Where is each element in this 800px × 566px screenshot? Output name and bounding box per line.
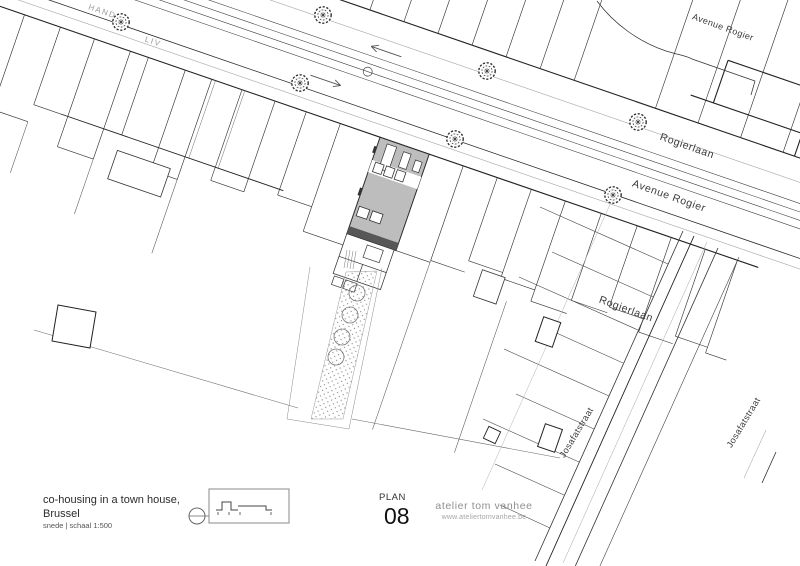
street-tree-icon bbox=[447, 131, 463, 147]
traffic-arrow-east bbox=[309, 72, 342, 89]
traffic-arrow-west bbox=[370, 43, 403, 60]
shed-3 bbox=[483, 426, 500, 443]
street-label-avenue-rogier-main: Avenue Rogier bbox=[631, 178, 708, 215]
street-label-avenue-rogier-top: Avenue Rogier bbox=[691, 11, 755, 42]
project-building bbox=[327, 136, 429, 300]
sheet-number: 08 bbox=[384, 503, 410, 529]
josafat-curb-2 bbox=[574, 248, 718, 566]
studio-url: www.ateliertomvanhee.be bbox=[441, 514, 527, 521]
project-title-line2: Brussel bbox=[43, 508, 80, 520]
east-dash-1 bbox=[744, 430, 766, 478]
site-plan-drawing: HAND LIV bbox=[0, 0, 800, 566]
street-label-rogierlaan-avenue: Rogierlaan bbox=[658, 131, 716, 161]
street-tree-icon bbox=[113, 14, 129, 30]
street-tree-icon bbox=[605, 187, 621, 203]
corner-outbuilding bbox=[52, 305, 96, 348]
terrace-box-1 bbox=[331, 276, 343, 288]
scale-note: snede | schaal 1:500 bbox=[43, 521, 112, 530]
title-block: co-housing in a town house, Brussel sned… bbox=[43, 489, 533, 530]
shed-1 bbox=[535, 317, 560, 347]
street-label-hand: HAND bbox=[87, 2, 117, 20]
josafat-curb-1 bbox=[546, 236, 694, 566]
garden-rear-boundaries bbox=[34, 330, 560, 458]
studio-name: atelier tom vanhee bbox=[435, 500, 532, 512]
josafat-parcel-walls bbox=[483, 207, 668, 528]
street-label-josafatstraat-west: Josafatstraat bbox=[558, 405, 596, 459]
sheet-label: PLAN bbox=[379, 492, 406, 503]
rotated-plan-frame: HAND LIV bbox=[0, 0, 800, 566]
street-label-rogierlaan-lower: Rogierlaan bbox=[597, 294, 654, 325]
josafat-center-line bbox=[563, 242, 707, 563]
project-title-line1: co-housing in a town house, bbox=[43, 494, 180, 506]
rear-annex-left bbox=[108, 150, 171, 197]
east-dash-2 bbox=[762, 452, 776, 483]
garden-boundary-walls bbox=[0, 122, 511, 458]
section-profile-icon bbox=[216, 502, 272, 510]
southwest-parcels bbox=[34, 305, 560, 458]
section-logo bbox=[189, 489, 289, 524]
street-tree-icon bbox=[315, 7, 331, 23]
section-profile-feet bbox=[218, 512, 271, 515]
double-wall-lines bbox=[189, 81, 245, 169]
site-plan-page: HAND LIV bbox=[0, 0, 800, 566]
street-tree-icon bbox=[630, 114, 646, 130]
south-rear-facade-line bbox=[61, 114, 283, 191]
north-rear-building-lines bbox=[683, 52, 800, 156]
rear-annex-right bbox=[473, 270, 505, 304]
street-tree-icon bbox=[292, 75, 308, 91]
street-label-josafatstraat-east: Josafatstraat bbox=[725, 395, 763, 449]
street-tree-icon bbox=[479, 63, 495, 79]
shed-2 bbox=[538, 424, 563, 453]
